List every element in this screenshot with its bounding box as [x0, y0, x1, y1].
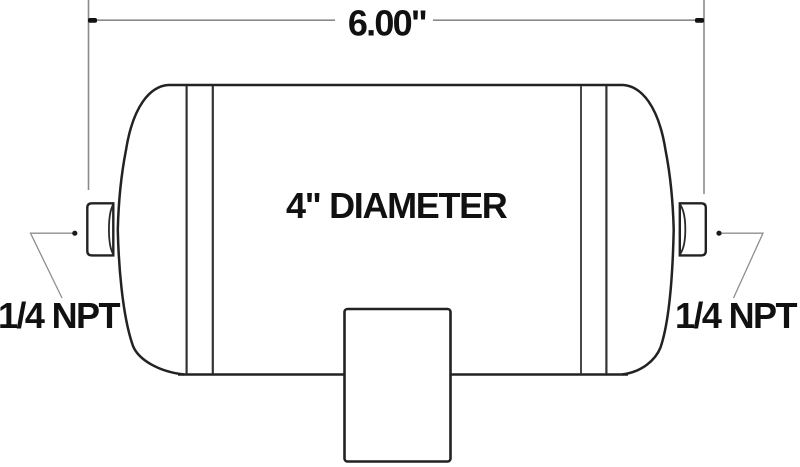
svg-text:4" DIAMETER: 4" DIAMETER [286, 185, 508, 226]
svg-text:1/4 NPT: 1/4 NPT [0, 295, 120, 336]
svg-text:6.00": 6.00" [348, 3, 426, 44]
svg-text:1/4 NPT: 1/4 NPT [675, 295, 797, 336]
